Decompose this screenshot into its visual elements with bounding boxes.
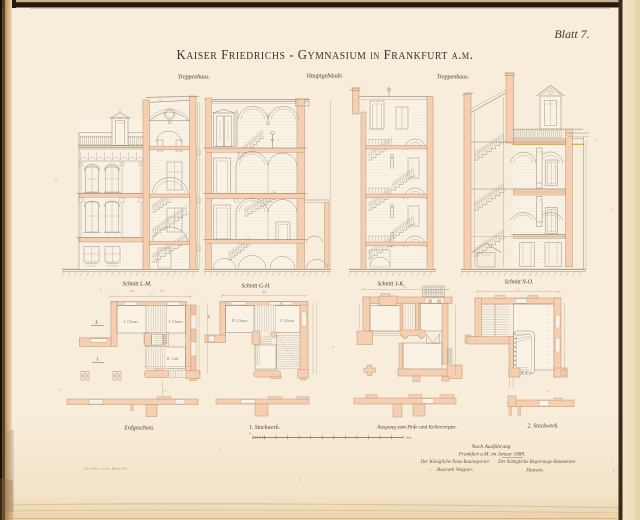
svg-text:I.: I.: [96, 357, 100, 362]
svg-text:Treppenhaus.: Treppenhaus.: [178, 75, 210, 81]
svg-text:23: 23: [130, 289, 134, 293]
svg-text:2.: 2.: [207, 314, 210, 319]
svg-text:IV. Classe.: IV. Classe.: [231, 318, 249, 323]
svg-text:I. Classe.: I. Classe.: [168, 319, 184, 324]
svg-text:II. Cab.: II. Cab.: [166, 356, 179, 361]
svg-text:X.: X.: [94, 320, 99, 325]
svg-text:Hauptgebäude.: Hauptgebäude.: [306, 74, 344, 80]
svg-text:Schnitt N-O.: Schnitt N-O.: [505, 280, 534, 286]
svg-text:21,0: 21,0: [149, 293, 154, 296]
svg-text:24: 24: [160, 289, 164, 293]
svg-text:18,5: 18,5: [403, 286, 408, 289]
svg-text:V. Classe.: V. Classe.: [280, 318, 296, 323]
svg-text:18,5: 18,5: [516, 288, 521, 291]
svg-text:21,0: 21,0: [262, 292, 267, 295]
svg-text:I. Classe.: I. Classe.: [123, 319, 139, 324]
svg-text:KAISER FRIEDRICHS - GYMNASIUM: KAISER FRIEDRICHS - GYMNASIUM IN FRANKFU…: [177, 48, 474, 63]
svg-text:Blatt 7.: Blatt 7.: [554, 27, 589, 41]
svg-text:Treppenhaus.: Treppenhaus.: [437, 75, 469, 81]
svg-text:Schnitt J-K.: Schnitt J-K.: [377, 282, 404, 288]
svg-text:Schnitt G-H.: Schnitt G-H.: [241, 284, 270, 290]
svg-text:Schnitt L-M.: Schnitt L-M.: [123, 282, 152, 288]
